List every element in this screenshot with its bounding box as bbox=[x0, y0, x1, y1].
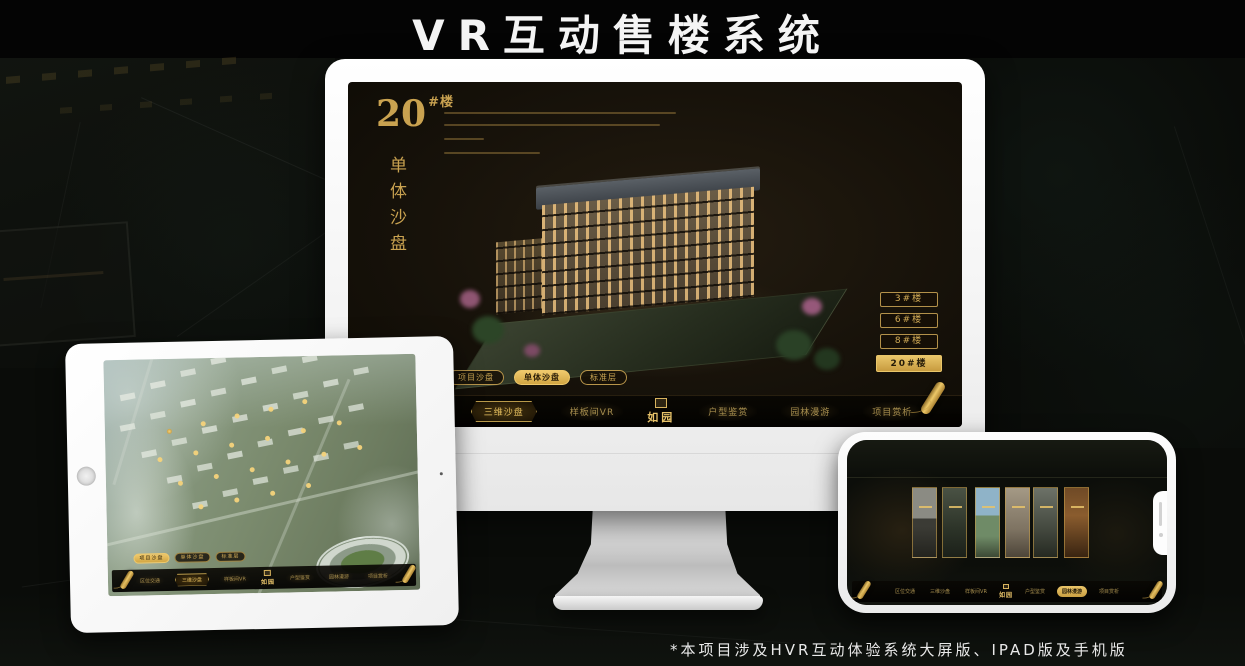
nav-logo[interactable]: 如园 bbox=[647, 398, 675, 425]
phone-notch bbox=[1153, 491, 1167, 555]
scroll-menu-icon[interactable] bbox=[928, 380, 938, 416]
panel-caption bbox=[1071, 506, 1084, 508]
panel-caption bbox=[949, 506, 962, 508]
phone-nav-3d-sandbox[interactable]: 三维沙盘 bbox=[927, 586, 953, 597]
tablet-nav-model-room-vr[interactable]: 样板间VR bbox=[220, 573, 250, 585]
background-aerial-right bbox=[980, 58, 1245, 448]
seal-icon bbox=[264, 570, 271, 576]
phone-nav-garden-roam-active[interactable]: 园林漫游 bbox=[1057, 586, 1087, 597]
tablet-nav-project-view[interactable]: 项目赏析 bbox=[364, 570, 392, 582]
panel-caption bbox=[919, 506, 932, 508]
tablet-subtab-project-sandbox-active[interactable]: 项目沙盘 bbox=[133, 553, 169, 564]
tree-green bbox=[814, 348, 840, 370]
background-plaque bbox=[0, 221, 136, 347]
scene-panel-1[interactable] bbox=[912, 487, 937, 558]
phone-nav-unit-view[interactable]: 户型鉴赏 bbox=[1022, 586, 1048, 597]
floor-button-6[interactable]: 6#楼 bbox=[880, 313, 938, 328]
building-facade-windows bbox=[542, 187, 754, 316]
tablet-nav-location[interactable]: 区位交通 bbox=[136, 575, 164, 587]
tree-green bbox=[776, 330, 812, 360]
nav-item-3d-sandbox-active[interactable]: 三维沙盘 bbox=[471, 401, 537, 422]
phone-nav-model-room-vr[interactable]: 样板间VR bbox=[962, 586, 990, 597]
panel-caption bbox=[982, 506, 995, 508]
scene-panel-4[interactable] bbox=[1005, 487, 1030, 558]
nav-item-garden-roam[interactable]: 园林漫游 bbox=[781, 402, 839, 421]
tablet-camera-dot bbox=[440, 472, 443, 475]
vertical-section-title: 单体沙盘 bbox=[384, 156, 409, 296]
stage: VR互动售楼系统 20#楼 单体沙盘 bbox=[0, 0, 1245, 666]
scene-panel-2[interactable] bbox=[942, 487, 967, 558]
footnote: *本项目涉及HVR互动体验系统大屏版、IPAD版及手机版 bbox=[670, 639, 1128, 660]
seal-icon bbox=[1003, 584, 1009, 589]
tablet-scroll-icon-right[interactable] bbox=[406, 564, 412, 584]
tablet-subtab-group: 项目沙盘 单体沙盘 标准层 bbox=[133, 551, 245, 563]
nav-item-model-room-vr[interactable]: 样板间VR bbox=[561, 402, 623, 421]
monitor-stand-base bbox=[553, 596, 763, 610]
subtab-single-sandbox-active[interactable]: 单体沙盘 bbox=[514, 370, 570, 385]
scene-panel-6[interactable] bbox=[1064, 487, 1089, 558]
tree-green bbox=[472, 316, 504, 344]
tablet-nav-logo[interactable]: 如园 bbox=[261, 570, 275, 586]
tablet-device: 项目沙盘 单体沙盘 标准层 区位交通 三维沙盘 样板间VR 如园 户型鉴赏 园林… bbox=[65, 336, 459, 633]
phone-device: 区位交通 三维沙盘 样板间VR 如园 户型鉴赏 园林漫游 项目赏析 bbox=[838, 432, 1176, 613]
building-number-heading: 20#楼 bbox=[376, 96, 454, 132]
tablet-nav-garden-roam[interactable]: 园林漫游 bbox=[325, 571, 353, 583]
page-title: VR互动售楼系统 bbox=[0, 2, 1245, 63]
seal-icon bbox=[655, 398, 667, 408]
tree-pink bbox=[802, 298, 822, 315]
floor-button-20-active[interactable]: 20#楼 bbox=[876, 355, 942, 372]
subtab-project-sandbox[interactable]: 项目沙盘 bbox=[448, 370, 504, 385]
tablet-nav-unit-view[interactable]: 户型鉴赏 bbox=[286, 571, 314, 583]
building-markers[interactable] bbox=[167, 429, 172, 434]
panel-caption bbox=[1040, 506, 1053, 508]
subtab-group: 项目沙盘 单体沙盘 标准层 bbox=[448, 370, 627, 385]
panel-caption bbox=[1012, 506, 1025, 508]
tree-pink bbox=[460, 290, 480, 308]
tablet-scroll-icon-left[interactable] bbox=[124, 570, 130, 590]
nav-item-unit-view[interactable]: 户型鉴赏 bbox=[699, 402, 757, 421]
speaker-slit-icon bbox=[1159, 502, 1162, 526]
scene-panel-5[interactable] bbox=[1033, 487, 1058, 558]
tablet-screen: 项目沙盘 单体沙盘 标准层 区位交通 三维沙盘 样板间VR 如园 户型鉴赏 园林… bbox=[103, 354, 420, 596]
tablet-nav-3d-sandbox-active[interactable]: 三维沙盘 bbox=[175, 573, 209, 587]
tablet-subtab-single-sandbox[interactable]: 单体沙盘 bbox=[174, 552, 210, 563]
phone-nav-project-view[interactable]: 项目赏析 bbox=[1096, 586, 1122, 597]
scene-panel-3[interactable] bbox=[975, 487, 1000, 558]
building-number-suffix: #楼 bbox=[428, 95, 454, 110]
phone-screen: 区位交通 三维沙盘 样板间VR 如园 户型鉴赏 园林漫游 项目赏析 bbox=[847, 440, 1167, 605]
tree-pink bbox=[524, 344, 540, 357]
floor-button-8[interactable]: 8#楼 bbox=[880, 334, 938, 349]
camera-dot-icon bbox=[1159, 533, 1163, 537]
phone-nav-bar: 区位交通 三维沙盘 样板间VR 如园 户型鉴赏 园林漫游 项目赏析 bbox=[852, 581, 1162, 602]
floor-button-3[interactable]: 3#楼 bbox=[880, 292, 938, 307]
subtab-standard-floor[interactable]: 标准层 bbox=[580, 370, 627, 385]
tablet-home-button[interactable] bbox=[77, 466, 96, 485]
phone-nav-logo[interactable]: 如园 bbox=[999, 584, 1013, 599]
phone-scroll-icon-left[interactable] bbox=[861, 580, 867, 600]
building-3d-render[interactable] bbox=[458, 148, 848, 388]
monitor-stand-neck bbox=[555, 505, 760, 603]
tablet-subtab-standard-floor[interactable]: 标准层 bbox=[215, 551, 245, 562]
aerial-building-rows bbox=[120, 392, 136, 401]
phone-scroll-icon-right[interactable] bbox=[1153, 580, 1159, 600]
floor-button-group: 3#楼 6#楼 8#楼 20#楼 bbox=[876, 292, 942, 372]
phone-nav-location[interactable]: 区位交通 bbox=[892, 586, 918, 597]
